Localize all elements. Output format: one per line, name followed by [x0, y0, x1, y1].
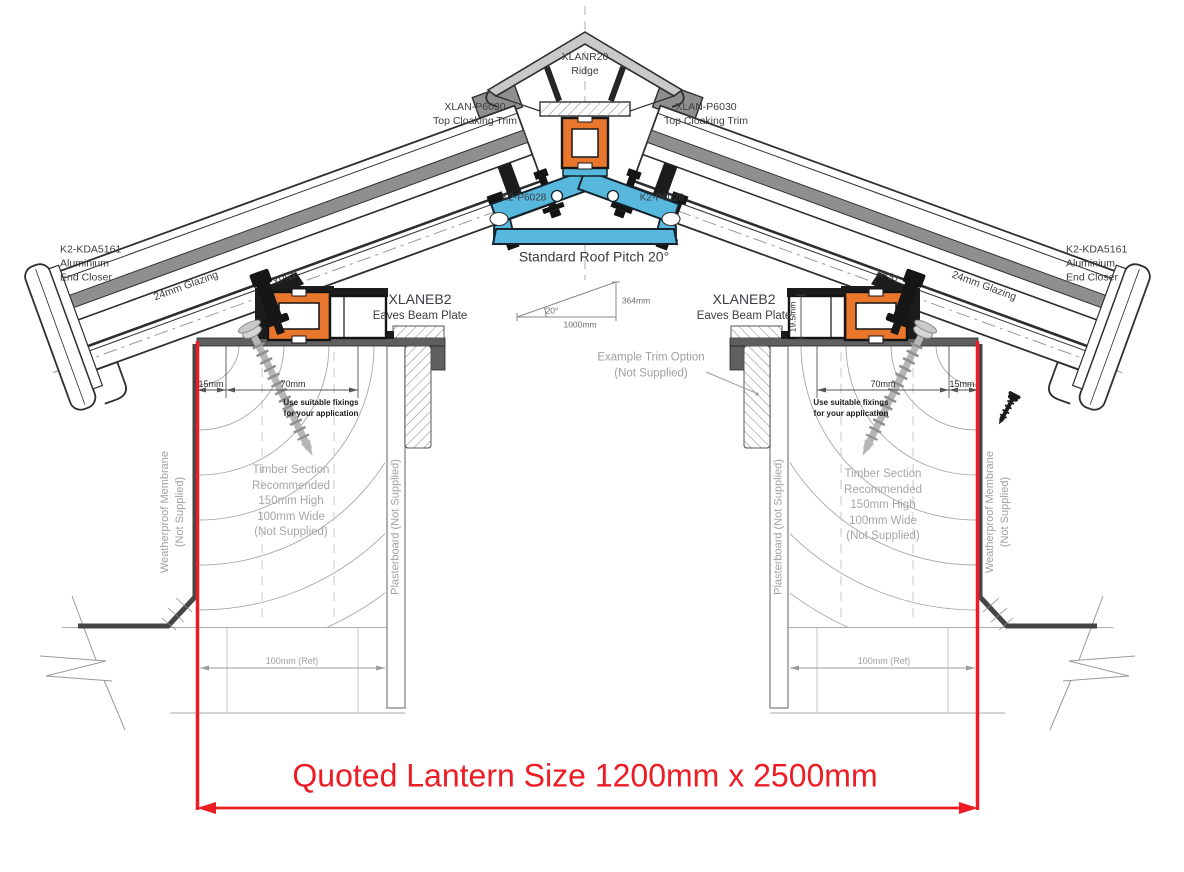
screw-icon — [993, 391, 1021, 428]
trim-option-leader-dot — [755, 392, 758, 395]
drawing-linework — [0, 0, 1184, 872]
roof-lantern-section-drawing: XLANR20 Ridge XLAN-P6030 Top Cloaking Tr… — [0, 0, 1184, 872]
pitch-triangle — [517, 282, 620, 321]
ridge-thermal-break — [562, 116, 608, 169]
